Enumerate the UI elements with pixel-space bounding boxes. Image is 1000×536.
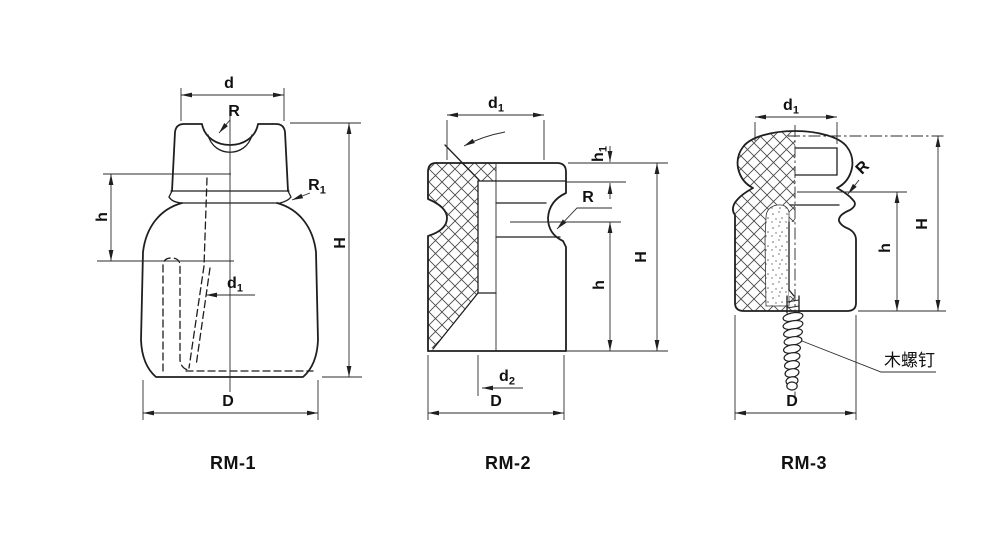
rm1-label-h: h [94, 212, 111, 222]
rm2-label-h1: h1 [590, 146, 610, 162]
figure-rm3: 木螺钉 d1 R h H D RM-3 [733, 97, 946, 473]
rm1-R-leader [219, 120, 230, 133]
rm1-lip-right [280, 191, 291, 203]
rm2-hatch-top-slab [428, 163, 496, 181]
rm1-label-D: D [222, 393, 234, 410]
rm1-label-d: d [224, 75, 234, 92]
rm1-label-d1: d1 [227, 275, 243, 295]
rm1-pinhole-dashed-1 [189, 178, 207, 368]
rm3-annotation-wood-screw: 木螺钉 [884, 351, 935, 370]
rm3-label-D: D [786, 393, 798, 410]
rm1-lip-left [169, 191, 181, 203]
rm2-label-d2: d2 [499, 368, 515, 388]
rm2-label-d1: d1 [488, 95, 504, 115]
rm2-hatch-left-wall [428, 181, 478, 293]
rm1-label-H: H [332, 237, 349, 249]
screw-tip [787, 382, 797, 390]
rm3-caption: RM-3 [781, 453, 827, 473]
rm3-hole-strip [789, 222, 795, 296]
rm1-R1-leader [292, 193, 310, 200]
rm2-label-R: R [582, 189, 594, 206]
rm3-label-h: h [877, 243, 894, 253]
rm1-pinhole-dashed-2 [196, 268, 210, 366]
rm1-petticoat-dashed [163, 258, 188, 371]
rm3-cement-pocket [765, 205, 789, 306]
rm1-label-R: R [228, 103, 240, 120]
rm2-R-leader [557, 208, 612, 229]
rm2-label-h: h [591, 280, 608, 290]
rm3-screw-thread [782, 311, 803, 390]
rm2-hatch-bottom-skirt [428, 293, 478, 348]
technical-drawing-canvas: d R R1 h H d1 D RM-1 [0, 0, 1000, 536]
rm2-thread-curved-arrow [464, 132, 505, 146]
rm3-label-R: R [853, 157, 874, 178]
figure-rm2: d1 h1 R h H d2 D RM-2 [428, 95, 668, 473]
insulator-drawing: d R R1 h H d1 D RM-1 [0, 0, 1000, 536]
rm2-label-H: H [633, 251, 650, 263]
rm1-caption: RM-1 [210, 453, 256, 473]
rm3-label-H: H [914, 218, 931, 230]
rm3-label-d1: d1 [783, 97, 799, 117]
rm1-label-R1: R1 [308, 177, 326, 197]
rm2-caption: RM-2 [485, 453, 531, 473]
rm2-label-D: D [490, 393, 502, 410]
figure-rm1: d R R1 h H d1 D RM-1 [94, 75, 362, 473]
